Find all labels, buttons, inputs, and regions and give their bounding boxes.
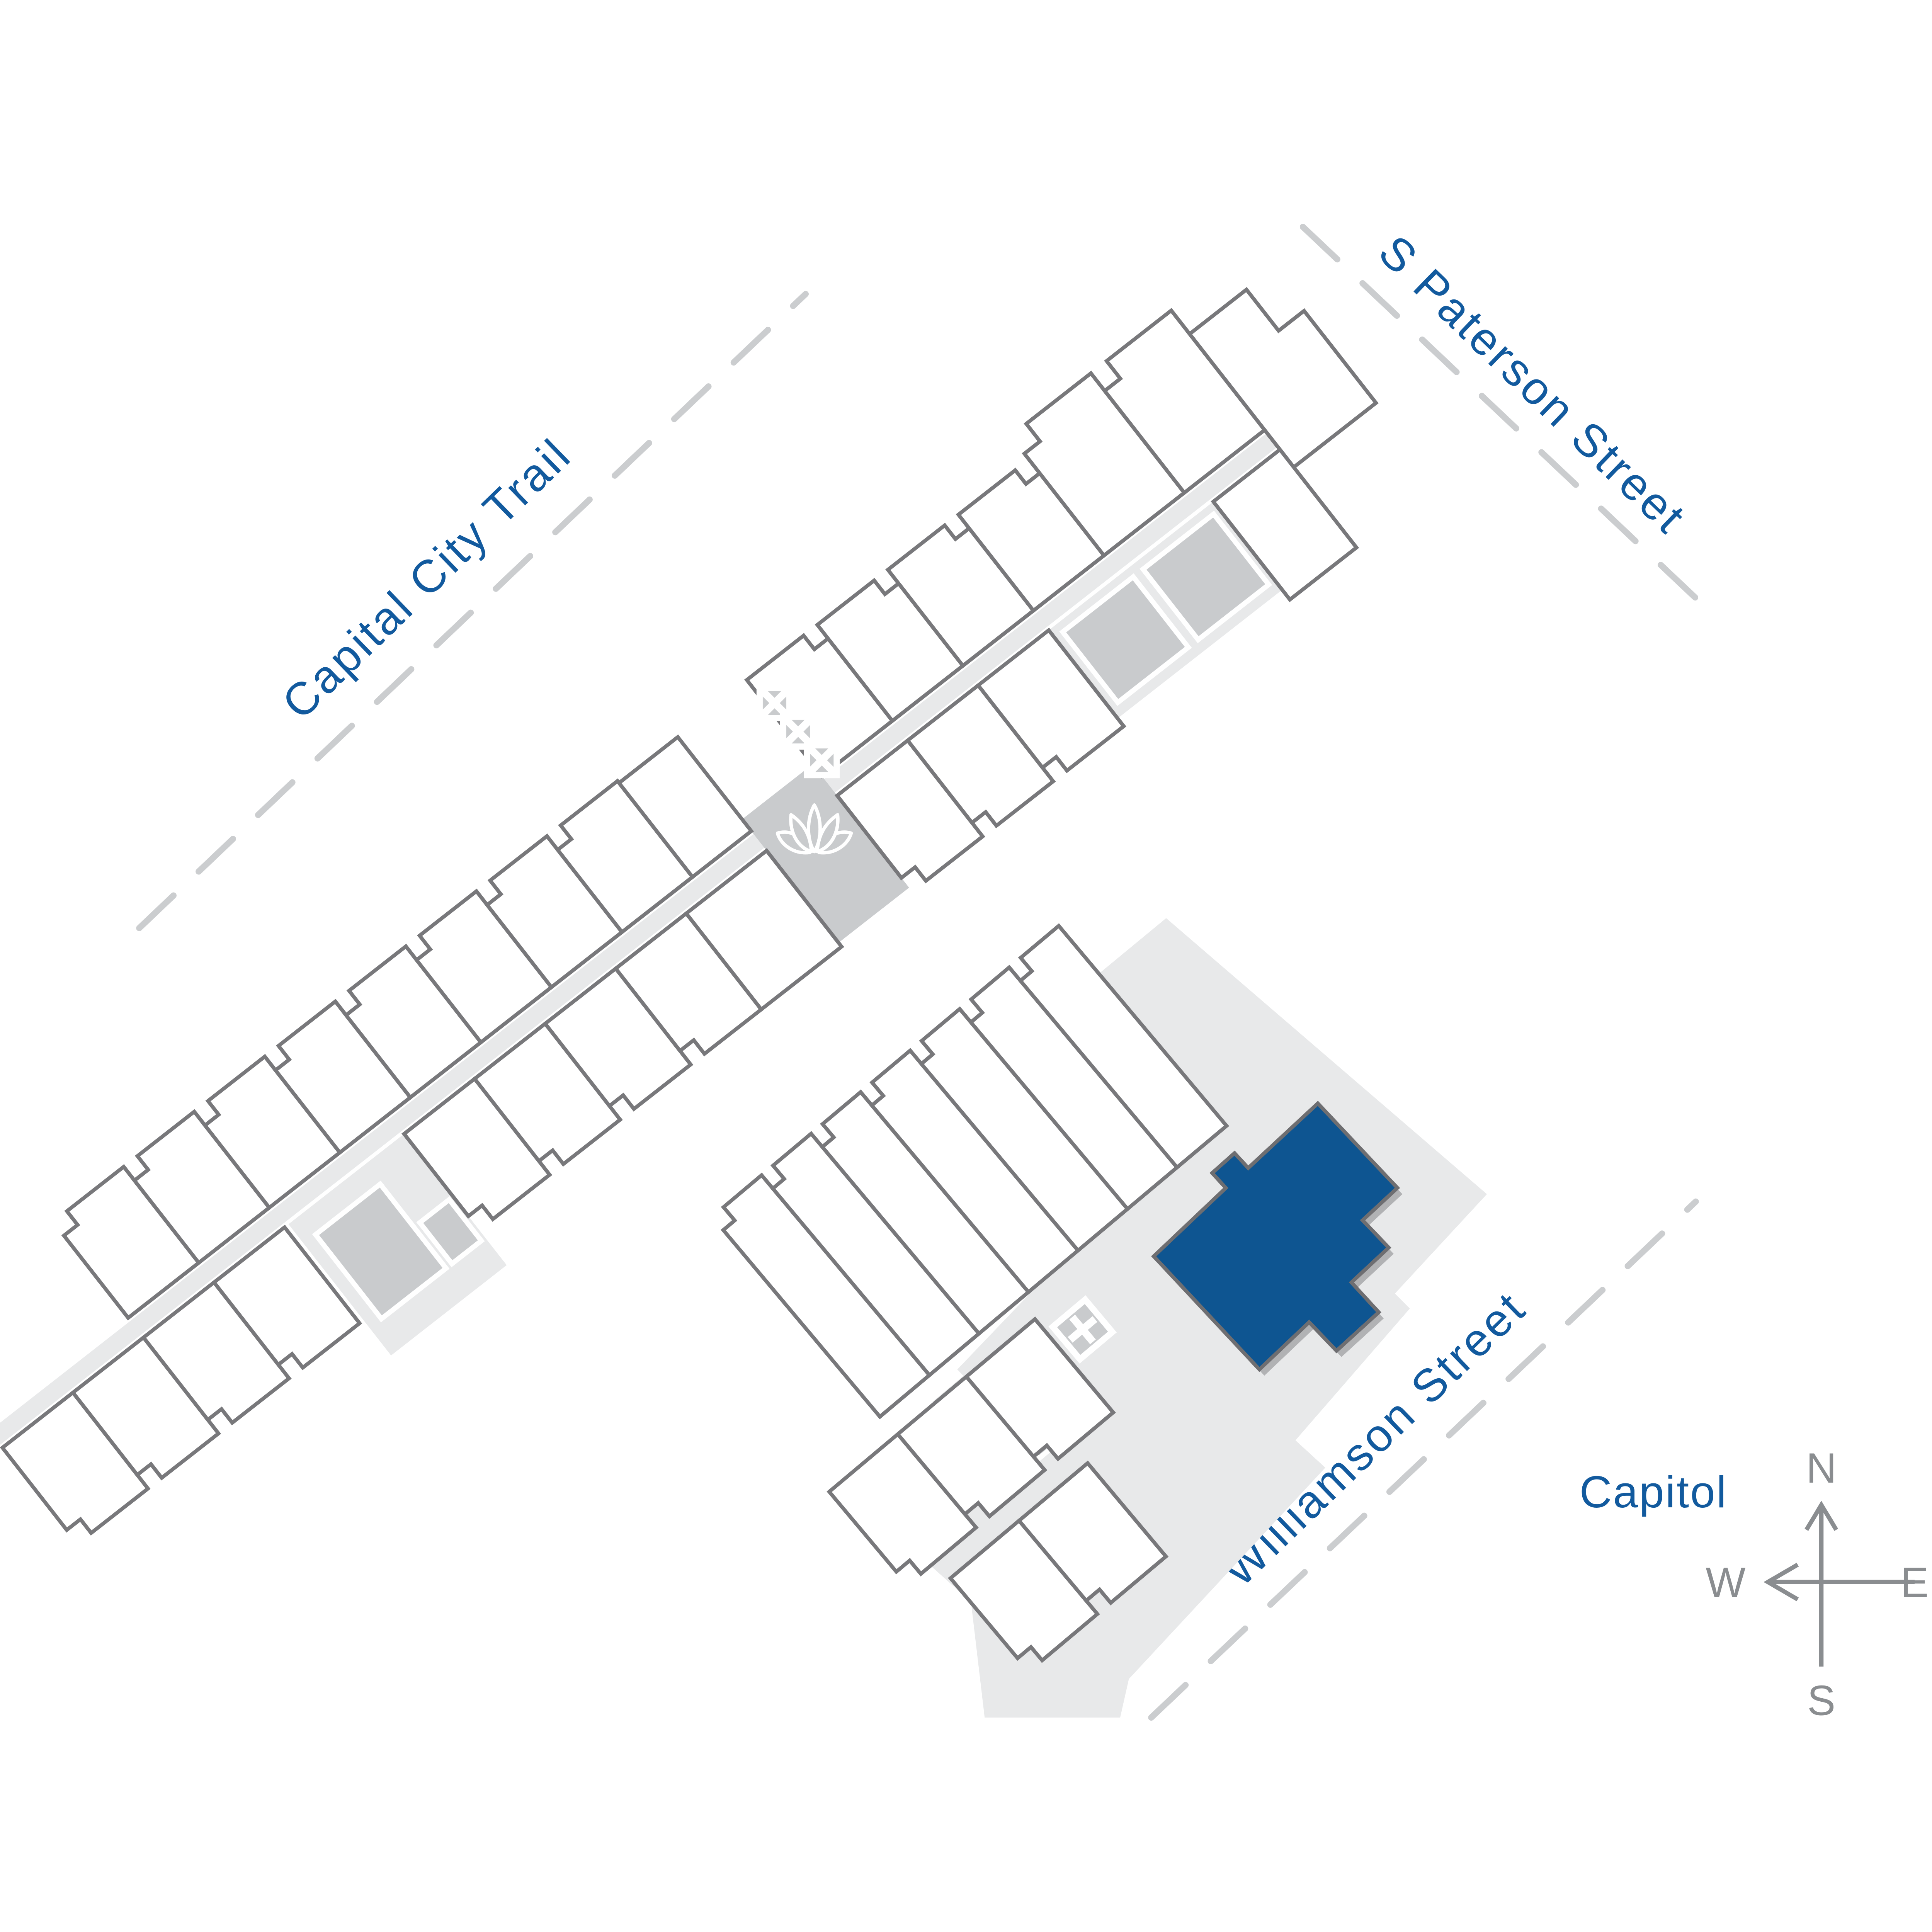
street-dash-s-paterson — [1303, 227, 1708, 610]
compass: N S W E — [1706, 1445, 1929, 1725]
street-label-capital-city-trail: Capital City Trail — [272, 429, 581, 729]
compass-label-e: E — [1900, 1559, 1929, 1606]
street-label-s-paterson: S Paterson Street — [1369, 225, 1696, 544]
landmark-label-capitol: Capitol — [1580, 1467, 1728, 1517]
compass-label-w: W — [1706, 1559, 1745, 1606]
x-box-icon — [760, 688, 789, 718]
compass-label-n: N — [1806, 1445, 1837, 1492]
x-box-icon — [807, 745, 837, 775]
site-map-canvas: Capital City Trail S Paterson Street Wil… — [0, 0, 1932, 1932]
x-box-icon — [783, 717, 813, 747]
compass-label-s: S — [1807, 1677, 1835, 1725]
